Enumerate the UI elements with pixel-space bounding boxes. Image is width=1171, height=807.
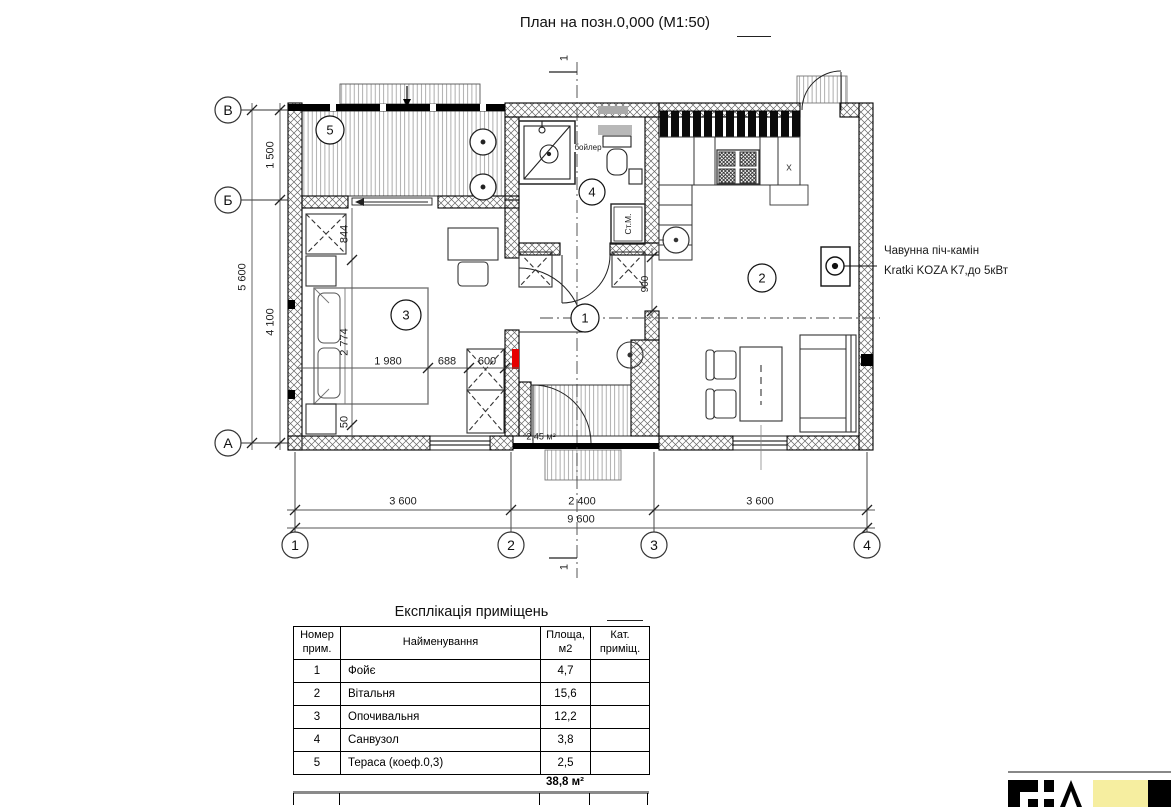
room-category <box>591 729 650 752</box>
room-number: 2 <box>294 683 341 706</box>
section-mark-top: 1 <box>560 55 571 61</box>
washer-label: Ст.М. <box>624 214 633 235</box>
dim-50: 50 <box>340 416 351 428</box>
dim-9600: 9 600 <box>567 515 595 526</box>
dim-688: 688 <box>438 357 456 368</box>
room-name: Опочивальня <box>341 706 541 729</box>
room-area: 12,2 <box>541 706 591 729</box>
logo-letter-i-top <box>1044 780 1054 792</box>
room-table: Номер прим. Найменування Площа, м2 Кат. … <box>293 626 650 775</box>
room-category <box>591 660 650 683</box>
col-area: Площа, м2 <box>541 627 591 660</box>
table-title-underline <box>607 620 643 621</box>
room-area: 15,6 <box>541 683 591 706</box>
room-name: Тераса (коеф.0,3) <box>341 752 541 775</box>
sink-mark: x <box>786 163 792 174</box>
fireplace-note-line2: Kratki KOZA K7,до 5кВт <box>884 266 1008 278</box>
grid-col-4: 4 <box>863 538 871 552</box>
table-row: 4 Санвузол 3,8 <box>294 729 650 752</box>
grid-col-2: 2 <box>507 538 515 552</box>
grid-row-a: А <box>223 436 232 450</box>
logo <box>1008 771 1171 807</box>
room-1-number: 1 <box>581 312 588 325</box>
dim-844: 844 <box>340 225 351 243</box>
room-name: Санвузол <box>341 729 541 752</box>
table-row: 1 Фойє 4,7 <box>294 660 650 683</box>
grid-col-3: 3 <box>650 538 658 552</box>
room-name: Фойє <box>341 660 541 683</box>
room-number: 4 <box>294 729 341 752</box>
room-number: 1 <box>294 660 341 683</box>
dim-1980: 1 980 <box>374 357 402 368</box>
room-explication: Експлікація приміщень Номер прим. Наймен… <box>293 604 650 805</box>
table-title: Експлікація приміщень <box>293 604 650 626</box>
red-marker <box>512 349 519 369</box>
drawing-sheet: { "title": {"text": "План на позн.0,000 … <box>0 0 1171 805</box>
col-category: Кат. приміщ. <box>591 627 650 660</box>
room-category <box>591 706 650 729</box>
col-number: Номер прим. <box>294 627 341 660</box>
dim-600: 600 <box>478 357 496 368</box>
room-area: 2,5 <box>541 752 591 775</box>
dim-1500: 1 500 <box>266 141 277 169</box>
table-row: 5 Тераса (коеф.0,3) 2,5 <box>294 752 650 775</box>
table-row: 2 Вітальня 15,6 <box>294 683 650 706</box>
grid-row-b: Б <box>223 193 232 207</box>
room-number: 3 <box>294 706 341 729</box>
logo-letter-g-top <box>1008 780 1038 792</box>
fireplace-note-line1: Чавунна піч-камін <box>884 246 979 258</box>
room-category <box>591 752 650 775</box>
dim-3600-a: 3 600 <box>389 497 417 508</box>
dim-4100: 4 100 <box>266 308 277 336</box>
logo-letter-a <box>1058 780 1084 807</box>
boiler-label: бойлер <box>573 144 602 152</box>
table-row: 3 Опочивальня 12,2 <box>294 706 650 729</box>
logo-yellow-block <box>1093 780 1148 807</box>
title-block-divider <box>293 791 649 794</box>
dim-3600-b: 3 600 <box>746 497 774 508</box>
room-number: 5 <box>294 752 341 775</box>
dim-2400: 2 400 <box>568 497 596 508</box>
col-name: Найменування <box>341 627 541 660</box>
room-2-number: 2 <box>758 272 765 285</box>
section-mark-bottom: 1 <box>560 564 571 570</box>
title-underline <box>737 36 771 37</box>
grid-col-1: 1 <box>291 538 299 552</box>
room-category <box>591 683 650 706</box>
dim-2774: 2 774 <box>340 328 351 356</box>
room-name: Вітальня <box>341 683 541 706</box>
table-header-row: Номер прим. Найменування Площа, м2 Кат. … <box>294 627 650 660</box>
kitchen-counter <box>659 137 808 260</box>
porch-area-label: 2,45 м² <box>526 433 555 442</box>
room-5-number: 5 <box>326 124 333 137</box>
room-4-number: 4 <box>588 186 595 199</box>
total-area: 38,8 м² <box>533 776 597 788</box>
room-area: 3,8 <box>541 729 591 752</box>
logo-letter-g-dot <box>1028 799 1038 807</box>
plan-title: План на позн.0,000 (М1:50) <box>455 14 775 31</box>
grid-row-v: В <box>223 103 232 117</box>
logo-black-block <box>1148 780 1171 807</box>
dim-900: 900 <box>641 276 651 293</box>
logo-letter-i-dot <box>1044 799 1054 807</box>
room-area: 4,7 <box>541 660 591 683</box>
dim-5600: 5 600 <box>238 263 249 291</box>
room-3-number: 3 <box>402 309 409 322</box>
